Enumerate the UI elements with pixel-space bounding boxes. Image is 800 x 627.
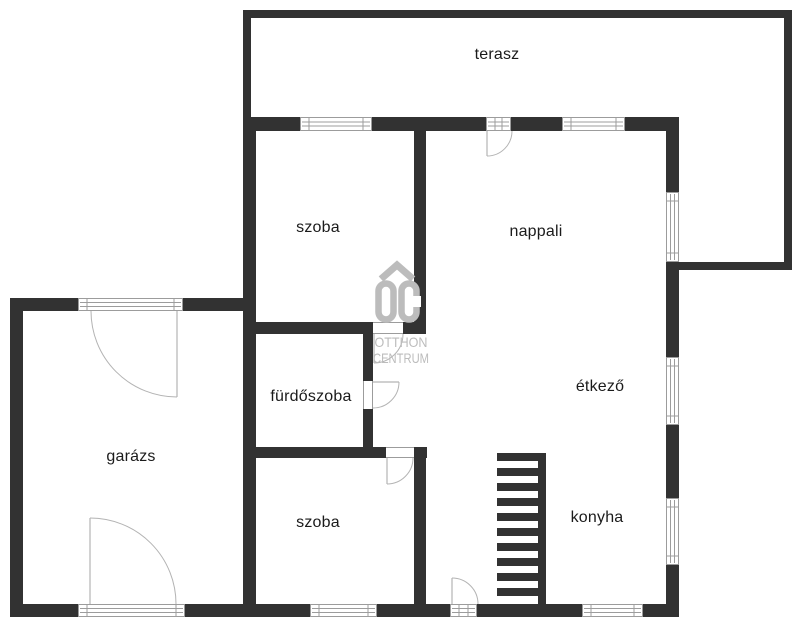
interior-wall-bath-bottom [414, 447, 427, 458]
house-wall-bottom [377, 604, 450, 617]
stairs-tread [497, 543, 538, 551]
house-wall-left [243, 117, 256, 617]
house-wall-top [372, 117, 486, 131]
stairs-tread [497, 483, 538, 491]
window-living-top [563, 118, 625, 131]
room-label-szoba-2: szoba [296, 514, 340, 531]
entry-door-swing [452, 578, 478, 604]
bathroom-door-swing-arc [373, 382, 399, 408]
interior-wall-bath-top [403, 322, 426, 334]
garage-top-door-swing [91, 311, 177, 397]
window-bedroom1-top-frame [301, 118, 372, 131]
stairs-tread [497, 588, 538, 596]
interior-wall-bedroom2-right [414, 458, 426, 604]
terrace-door-swing-arc [487, 131, 512, 156]
window-living-right [667, 193, 679, 262]
window-kitchen-right-frame [667, 499, 679, 565]
stairs-tread [497, 468, 538, 476]
entry-door-swing-arc [452, 578, 478, 604]
terrace-door-glazing-frame [487, 118, 511, 131]
garage-bottom-door-swing [90, 518, 176, 604]
entry-door-glazing [451, 605, 477, 617]
roof-icon [381, 265, 413, 279]
room-label-nappali: nappali [509, 223, 562, 240]
house-wall-bottom [643, 604, 679, 617]
stairs-tread [497, 513, 538, 521]
terrace-wall-left [243, 18, 251, 117]
room-label-furdoszoba: fürdőszoba [270, 388, 351, 405]
window-kitchen-right [667, 499, 679, 565]
garage-top-door-swing-arc [91, 311, 177, 397]
windows-layer [79, 118, 679, 617]
stairs-tread [497, 498, 538, 506]
door-opening-bedroom2 [386, 447, 414, 458]
window-living-right-frame [667, 193, 679, 262]
watermark-line1: OTTHON [375, 334, 428, 350]
garage-bottom-door-swing-arc [90, 518, 176, 604]
stairs-tread [497, 558, 538, 566]
stairs-tread [497, 528, 538, 536]
window-bedroom1-top [301, 118, 372, 131]
stairs-tread [497, 573, 538, 581]
terrace-wall-top [243, 10, 792, 18]
terrace-door-glazing [487, 118, 511, 131]
house-wall-top [625, 117, 679, 131]
house-wall-bottom [477, 604, 582, 617]
house-wall-top [511, 117, 562, 131]
house-wall-right [666, 262, 679, 357]
terrace-wall-bottom-right [679, 262, 784, 270]
terrace-door-swing [487, 131, 512, 156]
door-opening-bedroom2-gap [386, 447, 414, 458]
door-opening-bedroom1-gap [373, 322, 403, 334]
bathroom-door-swing [373, 382, 399, 408]
floor-plan-drawing: OTTHON CENTRUM teraszszobanappalifürdősz… [0, 0, 800, 627]
room-label-etkezo: étkező [576, 378, 624, 395]
interior-wall-bath-right [363, 334, 373, 381]
window-dining-right-frame [667, 358, 679, 425]
house-wall-right [666, 425, 679, 498]
terrace-wall-right [784, 18, 792, 270]
window-living-top-frame [563, 118, 625, 131]
door-swings-layer [90, 131, 512, 604]
stairs-tread [497, 453, 546, 461]
garage-door-top [79, 299, 183, 311]
room-label-szoba-1: szoba [296, 219, 340, 236]
room-label-terasz: terasz [475, 46, 520, 63]
room-label-garazs: garázs [106, 448, 155, 465]
door-opening-bathroom [363, 381, 373, 409]
window-kitchen-bottom [583, 605, 643, 617]
watermark-line2: CENTRUM [373, 350, 429, 366]
entry-door-glazing-frame [451, 605, 477, 617]
bedroom2-door-swing-arc [387, 458, 413, 484]
window-dining-right [667, 358, 679, 425]
garage-door-top-frame [79, 299, 183, 311]
room-label-konyha: konyha [571, 509, 624, 526]
garage-wall-top [183, 298, 243, 311]
door-opening-bathroom-gap [363, 381, 373, 409]
floor-plan: OTTHON CENTRUM teraszszobanappalifürdősz… [0, 0, 800, 627]
interior-wall-bath-bottom [256, 447, 386, 458]
door-opening-bedroom1 [373, 322, 403, 334]
garage-door-bottom-frame [79, 605, 185, 617]
oc-logo-letter-c-gap [409, 296, 421, 307]
bedroom2-door-swing [387, 458, 413, 484]
garage-door-bottom [79, 605, 185, 617]
house-wall-bottom [185, 604, 310, 617]
window-bedroom2-bottom [311, 605, 377, 617]
house-wall-right [666, 131, 679, 192]
stairs [497, 453, 546, 604]
garage-wall-left [10, 298, 23, 617]
garage-wall-top [10, 298, 78, 311]
interior-wall-bath-top [256, 322, 373, 334]
window-bedroom2-bottom-frame [311, 605, 377, 617]
oc-logo-letter-o-icon [379, 284, 394, 320]
stair-stringer [538, 453, 546, 604]
